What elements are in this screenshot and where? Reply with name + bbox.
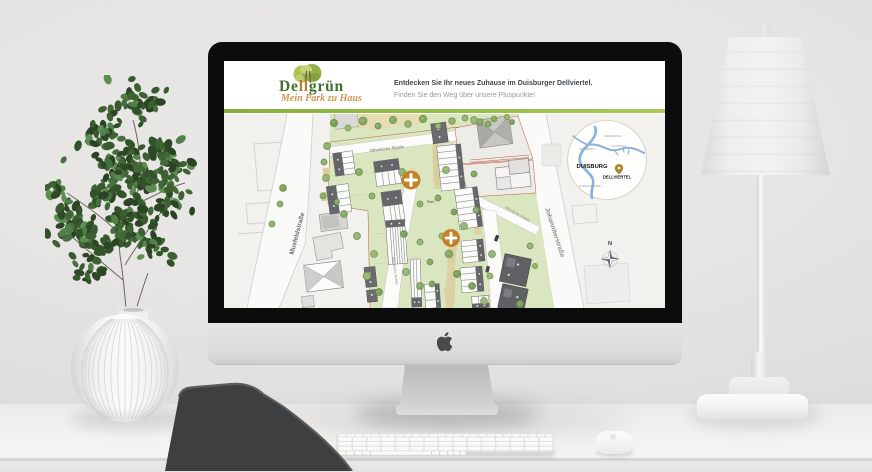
svg-text:DUISBURG: DUISBURG bbox=[577, 164, 608, 170]
svg-text:Park: Park bbox=[427, 200, 434, 204]
svg-text:HOMBERG: HOMBERG bbox=[579, 147, 595, 151]
svg-text:RUHRORT: RUHRORT bbox=[612, 144, 627, 148]
svg-text:DELLVIERTEL: DELLVIERTEL bbox=[603, 174, 632, 179]
svg-text:MEIDERICH: MEIDERICH bbox=[605, 134, 622, 138]
svg-text:N: N bbox=[608, 241, 612, 247]
svg-text:RHEINHAUSEN: RHEINHAUSEN bbox=[579, 184, 601, 188]
